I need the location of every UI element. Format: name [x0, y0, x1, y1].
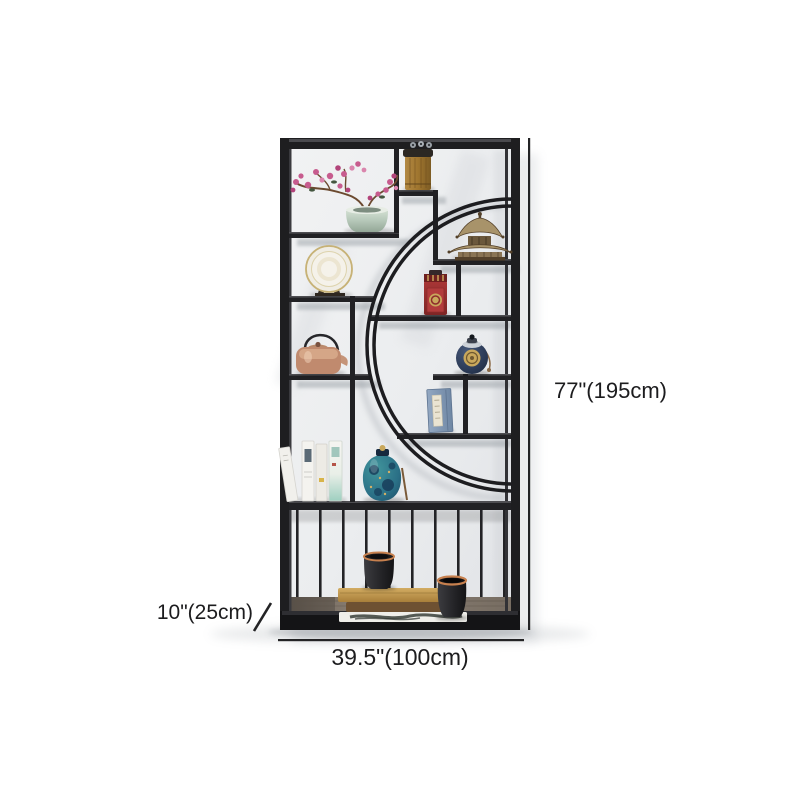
- post-e: [456, 259, 461, 316]
- shelf-blue-book: [397, 433, 511, 439]
- width-dimension-line: [278, 639, 524, 641]
- depth-dimension-label: 10"(25cm): [133, 601, 253, 625]
- shelf-main: [289, 501, 511, 510]
- width-dimension-label: 39.5"(100cm): [300, 644, 500, 671]
- blue-book-box: [425, 388, 455, 434]
- product-image: 77"(195cm) 10"(25cm) 39.5"(100cm): [0, 0, 800, 800]
- post-b: [433, 190, 438, 260]
- post-c: [350, 296, 355, 502]
- shelf-illustration: [0, 0, 800, 800]
- post-a: [394, 149, 399, 233]
- red-tea-caddy: [421, 270, 451, 316]
- white-books: [279, 441, 346, 502]
- height-dimension-label: 77"(195cm): [554, 378, 667, 404]
- height-dimension-line: [528, 138, 530, 630]
- post-f: [463, 374, 468, 434]
